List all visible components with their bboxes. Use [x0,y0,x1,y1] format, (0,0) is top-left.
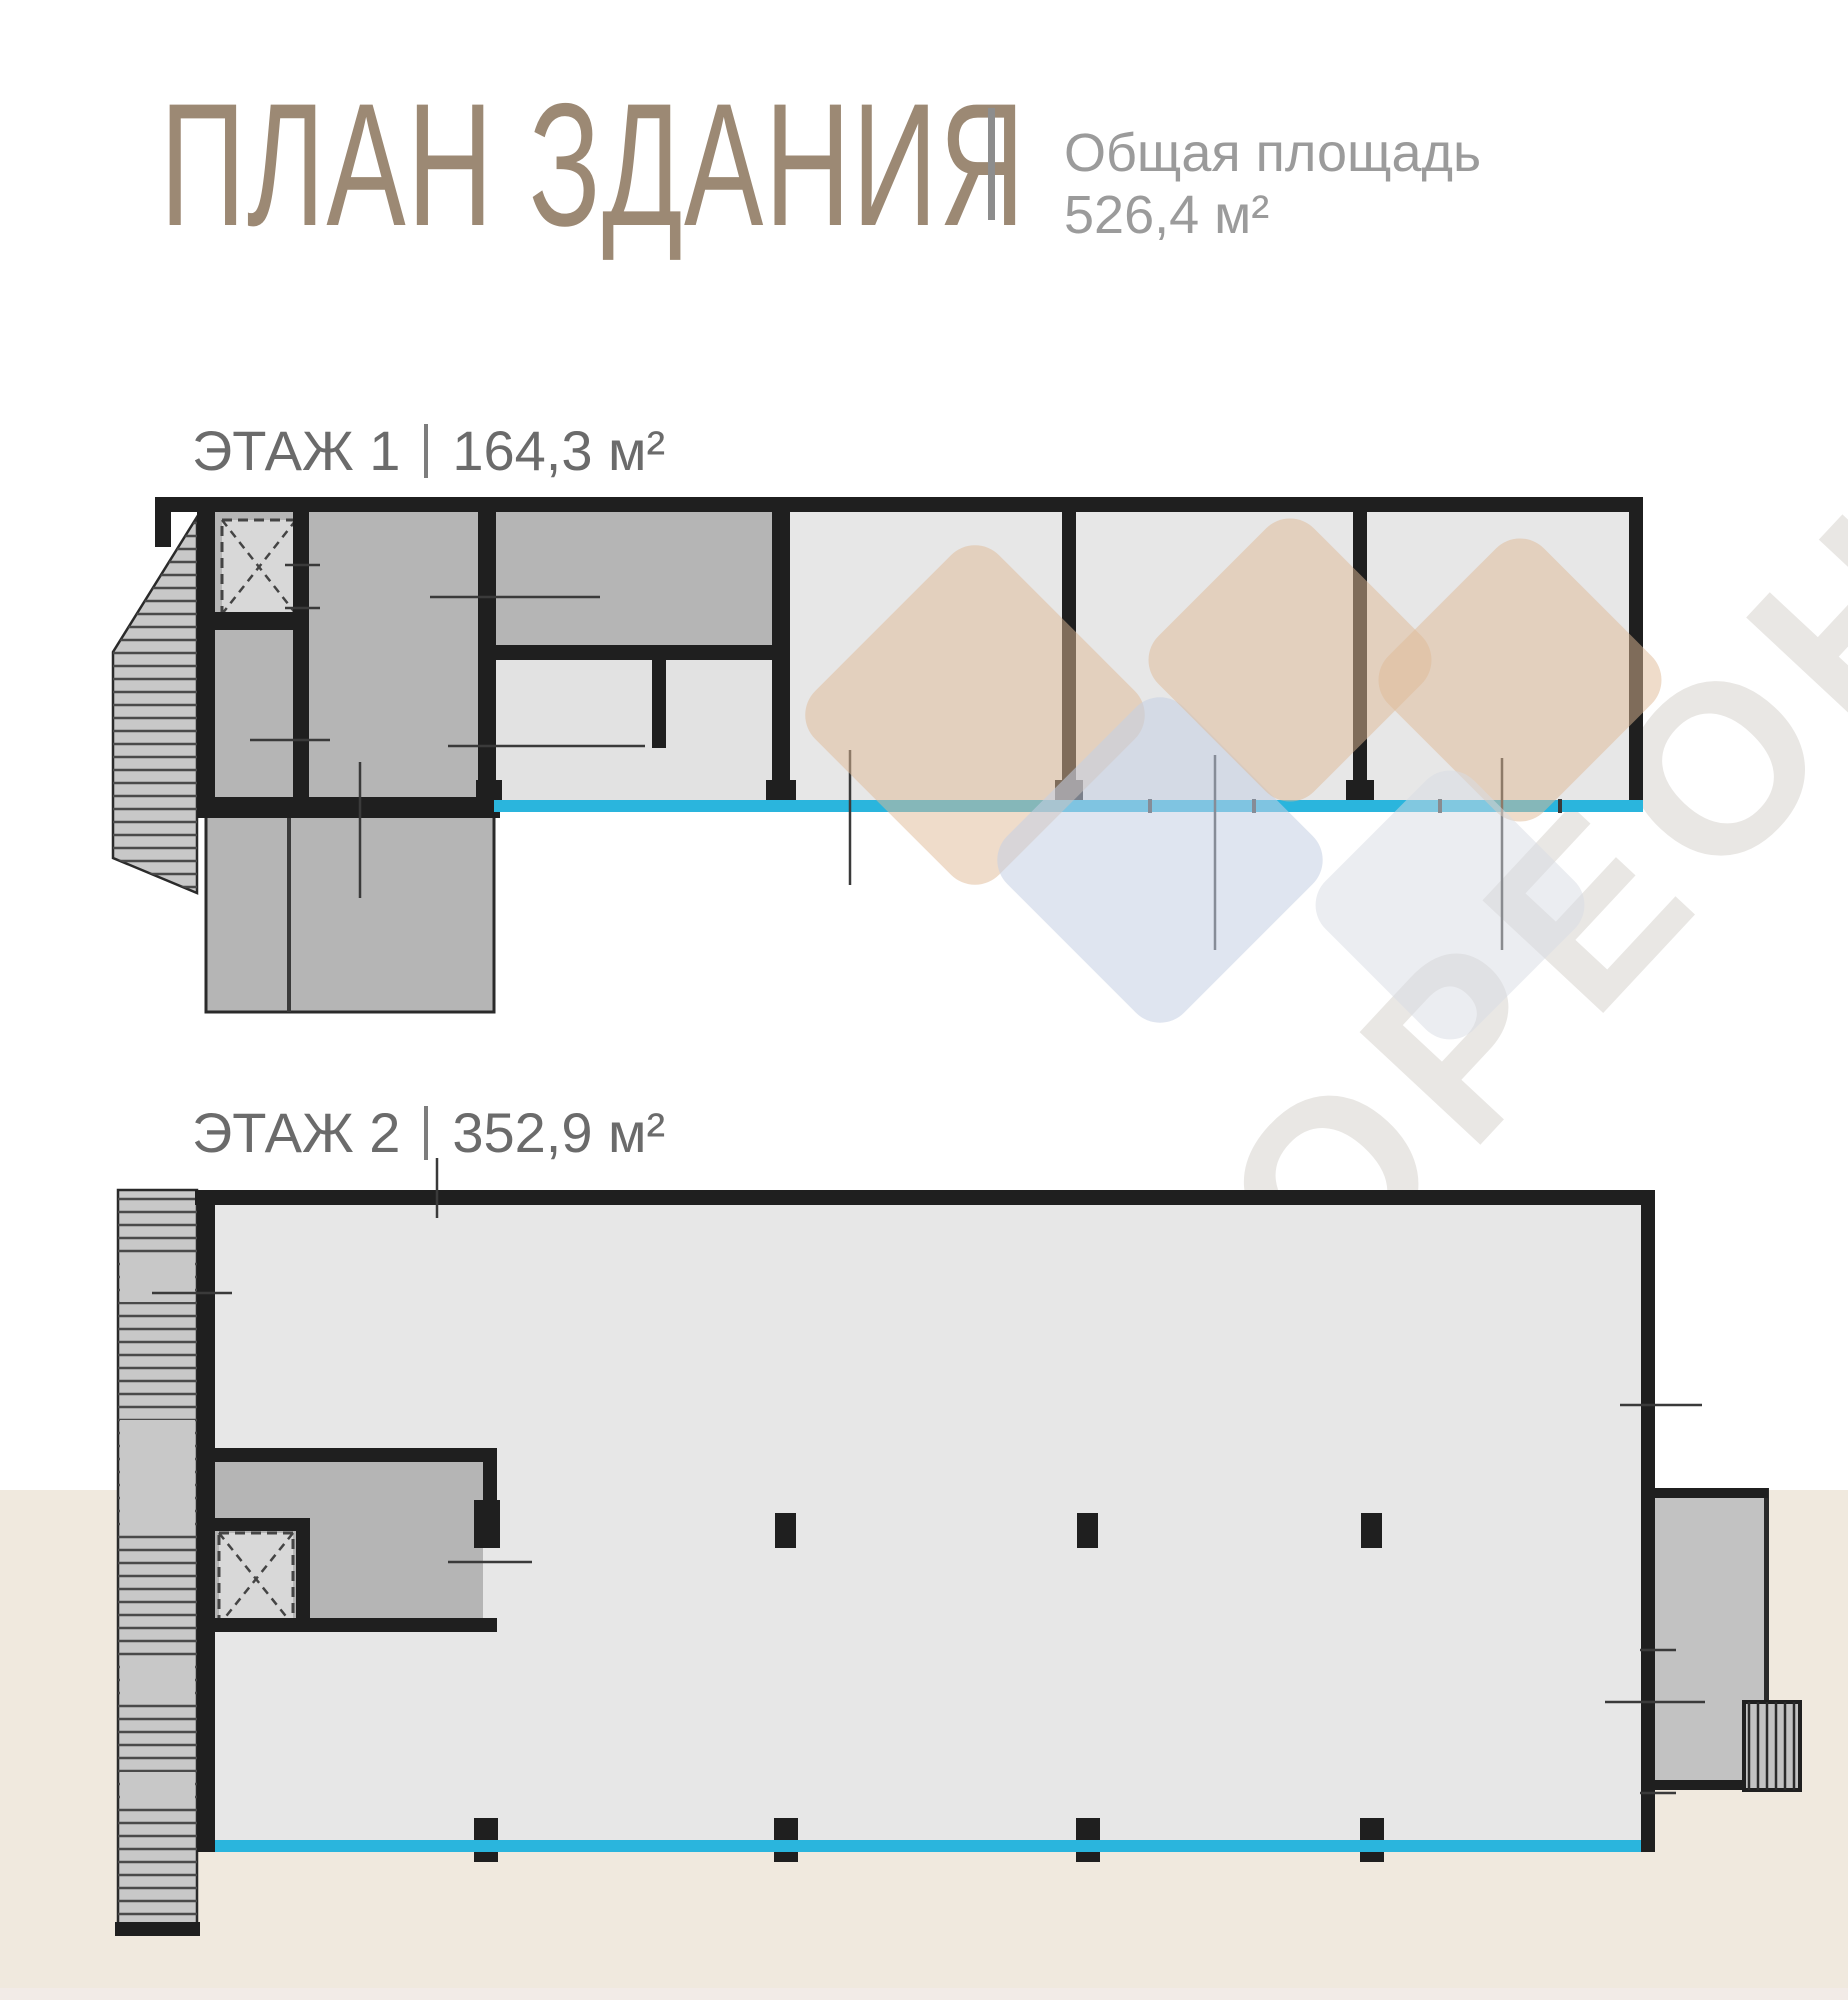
floor1-name: ЭТАЖ 1 [192,418,400,483]
floor2-label: ЭТАЖ 2 352,9 м² [192,1100,665,1165]
floor2-label-divider [424,1106,428,1160]
floor2-window-line [215,1840,1641,1852]
floor2-name: ЭТАЖ 2 [192,1100,400,1165]
bottom-edge-strip [0,1988,1848,2000]
header-divider [988,108,995,220]
floor1-label-divider [424,424,428,478]
floor1-exterior-staircase [113,517,197,893]
page-title: ПЛАН ЗДАНИЯ [160,78,1026,253]
floor1-label: ЭТАЖ 1 164,3 м² [192,418,665,483]
floor2-area: 352,9 м² [452,1100,665,1165]
building-plan-page: МОРЕОН ПЛАН ЗДАНИЯ Общая площадь 526,4 м… [0,0,1848,2000]
total-area-value: 526,4 м² [1064,184,1481,246]
floor2-right-annex [1655,1488,1800,1790]
floor1-lower-extension [206,812,494,1012]
floor1-elevator-shaft [222,520,296,614]
floor2-elevator-shaft [219,1533,293,1625]
floor1-area: 164,3 м² [452,418,665,483]
total-area-block: Общая площадь 526,4 м² [1064,122,1481,246]
floor2-exterior-staircase [115,1190,200,1936]
annex-stairs-icon [1744,1702,1800,1790]
floor2-plan-svg [60,1150,1820,1950]
total-area-label: Общая площадь [1064,122,1481,184]
